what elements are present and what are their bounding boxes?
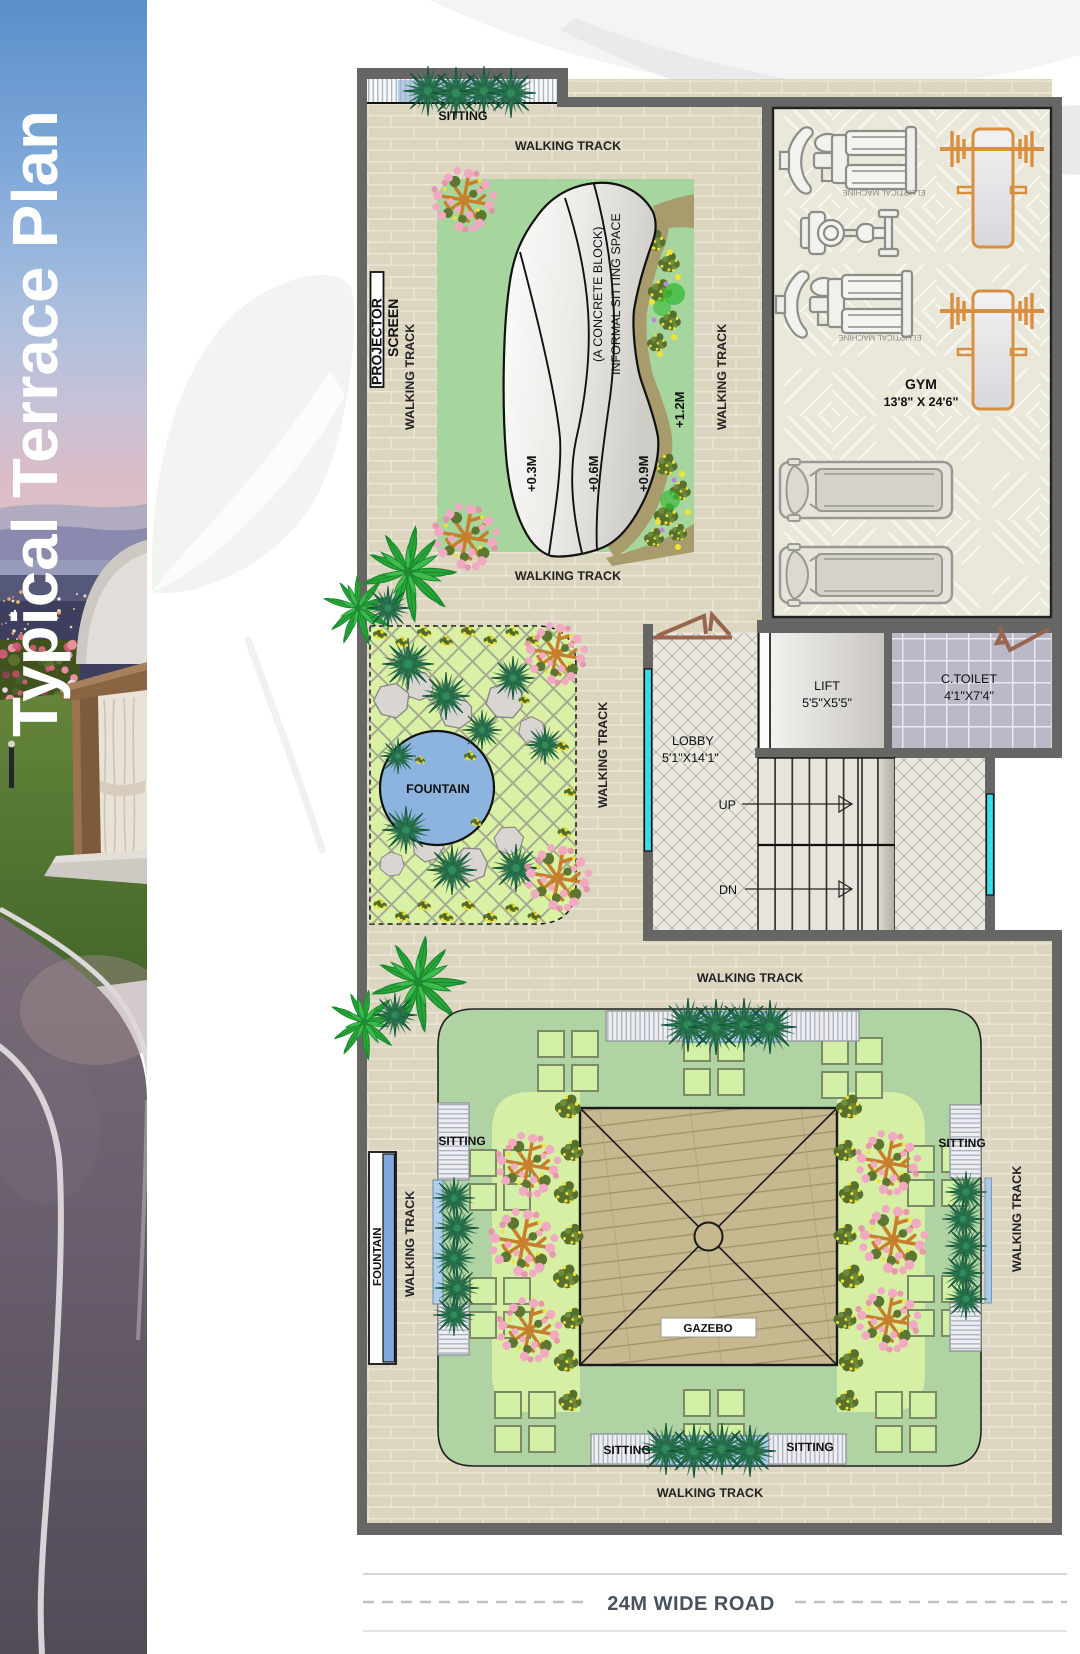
svg-text:Typical Terrace Plan: Typical Terrace Plan <box>0 110 71 737</box>
svg-text:ELLIPTICAL MACHINE: ELLIPTICAL MACHINE <box>838 333 921 342</box>
svg-text:24M WIDE ROAD: 24M WIDE ROAD <box>607 1593 775 1615</box>
svg-text:13'8" X 24'6": 13'8" X 24'6" <box>884 395 959 409</box>
svg-text:5'5"X5'5": 5'5"X5'5" <box>802 696 852 710</box>
svg-text:WALKING TRACK: WALKING TRACK <box>403 1191 417 1297</box>
svg-text:WALKING TRACK: WALKING TRACK <box>403 324 417 430</box>
svg-text:INFORMAL SITTING SPACE: INFORMAL SITTING SPACE <box>609 213 623 375</box>
svg-text:WALKING TRACK: WALKING TRACK <box>657 1486 763 1500</box>
svg-text:GAZEBO: GAZEBO <box>683 1323 732 1335</box>
svg-text:WALKING TRACK: WALKING TRACK <box>515 569 621 583</box>
svg-text:WALKING TRACK: WALKING TRACK <box>596 702 610 808</box>
svg-text:WALKING TRACK: WALKING TRACK <box>515 139 621 153</box>
svg-text:SITTING: SITTING <box>938 1136 985 1150</box>
svg-text:WALKING TRACK: WALKING TRACK <box>715 324 729 430</box>
svg-text:+0.9M: +0.9M <box>636 456 651 493</box>
svg-text:DN: DN <box>719 883 737 897</box>
svg-text:WALKING TRACK: WALKING TRACK <box>697 971 803 985</box>
svg-text:ELLIPTICAL MACHINE: ELLIPTICAL MACHINE <box>842 188 925 197</box>
svg-text:LIFT: LIFT <box>814 679 840 693</box>
svg-text:SITTING: SITTING <box>603 1443 650 1457</box>
svg-text:GYM: GYM <box>905 376 937 392</box>
svg-text:SITTING: SITTING <box>438 1134 485 1148</box>
svg-text:LOBBY: LOBBY <box>672 734 714 748</box>
svg-text:4'1"X7'4": 4'1"X7'4" <box>944 689 994 703</box>
svg-text:FOUNTAIN: FOUNTAIN <box>372 1227 384 1286</box>
svg-text:5'1"X14'1": 5'1"X14'1" <box>662 751 719 765</box>
svg-text:(A CONCRETE BLOCK): (A CONCRETE BLOCK) <box>591 227 605 362</box>
svg-text:UP: UP <box>719 798 736 812</box>
svg-text:SCREEN: SCREEN <box>385 299 401 357</box>
svg-text:+0.6M: +0.6M <box>586 456 601 493</box>
svg-text:+1.2M: +1.2M <box>672 392 687 429</box>
svg-text:WALKING TRACK: WALKING TRACK <box>1010 1166 1024 1272</box>
svg-text:PROJECTOR: PROJECTOR <box>369 298 385 385</box>
svg-text:+0.3M: +0.3M <box>524 456 539 493</box>
svg-text:C.TOILET: C.TOILET <box>941 672 997 686</box>
svg-text:FOUNTAIN: FOUNTAIN <box>406 782 470 796</box>
svg-text:SITTING: SITTING <box>786 1440 833 1454</box>
svg-text:SITTING: SITTING <box>438 109 487 123</box>
